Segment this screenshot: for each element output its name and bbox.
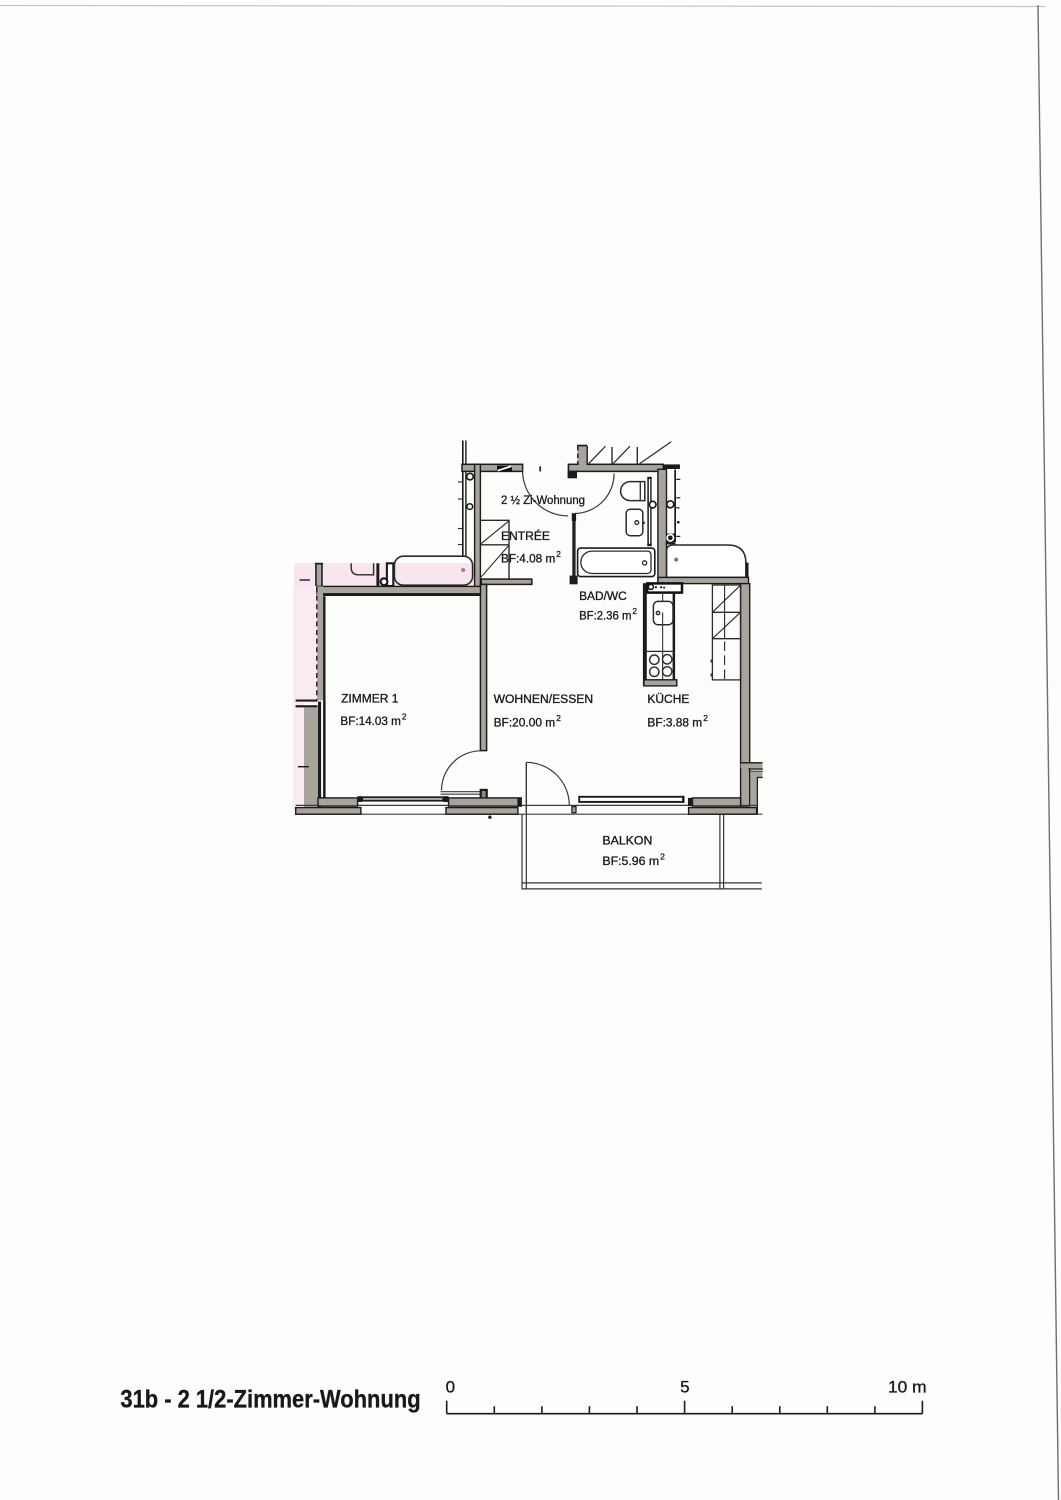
svg-text:0: 0	[446, 1378, 455, 1397]
svg-text:2: 2	[402, 711, 407, 721]
svg-text:BF:20.00 m: BF:20.00 m	[494, 716, 556, 730]
svg-text:2: 2	[556, 549, 561, 559]
svg-text:2: 2	[632, 606, 637, 616]
svg-text:BF:4.08 m: BF:4.08 m	[501, 552, 555, 566]
svg-text:5: 5	[680, 1378, 689, 1397]
svg-text:ZIMMER 1: ZIMMER 1	[341, 692, 398, 706]
svg-text:BAD/WC: BAD/WC	[579, 589, 627, 603]
svg-text:WOHNEN/ESSEN: WOHNEN/ESSEN	[494, 692, 593, 706]
svg-text:BF:2.36 m: BF:2.36 m	[579, 609, 631, 623]
svg-text:10 m: 10 m	[888, 1378, 927, 1397]
svg-text:2: 2	[703, 713, 708, 723]
svg-text:BF:5.96 m: BF:5.96 m	[602, 854, 659, 868]
svg-text:BF:14.03 m: BF:14.03 m	[340, 714, 401, 728]
svg-text:2: 2	[556, 713, 561, 723]
svg-text:2 ½ Zi-Wohnung: 2 ½ Zi-Wohnung	[501, 493, 585, 507]
svg-text:31b - 2 1/2-Zimmer-Wohnung: 31b - 2 1/2-Zimmer-Wohnung	[120, 1385, 420, 1413]
svg-text:KÜCHE: KÜCHE	[647, 692, 689, 706]
svg-text:BALKON: BALKON	[602, 834, 652, 848]
svg-text:2: 2	[660, 852, 665, 862]
svg-text:ENTRÉE: ENTRÉE	[501, 528, 550, 543]
svg-text:BF:3.88 m: BF:3.88 m	[647, 716, 702, 730]
